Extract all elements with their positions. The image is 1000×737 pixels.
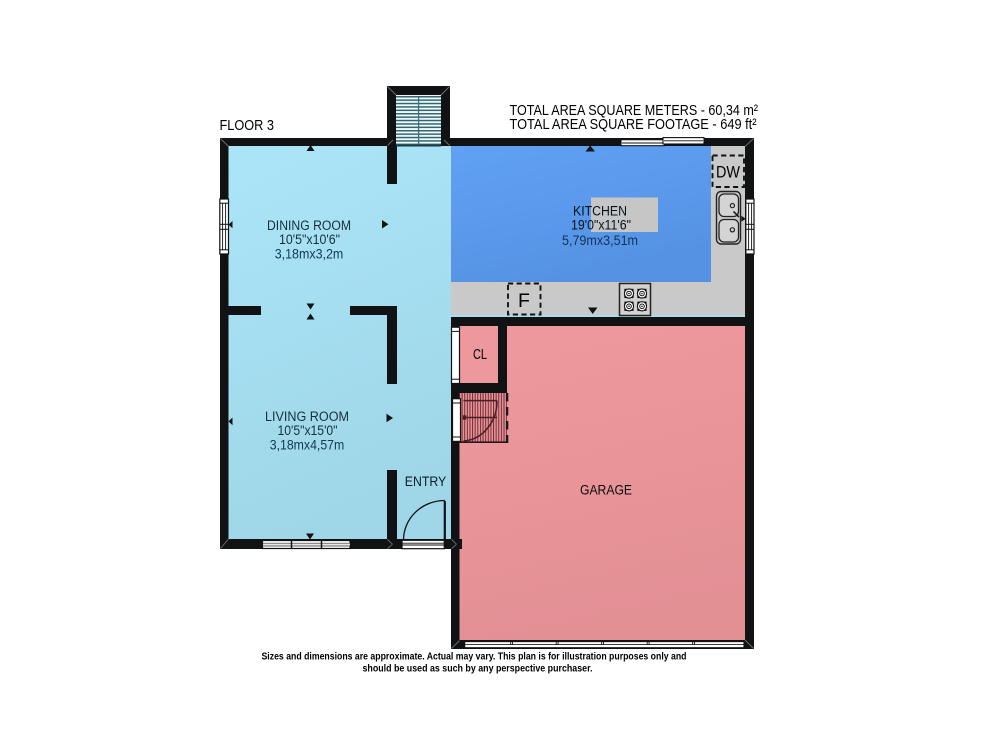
svg-text:GARAGE: GARAGE (580, 483, 632, 498)
svg-text:KITCHEN: KITCHEN (573, 204, 627, 219)
svg-text:F: F (518, 290, 530, 312)
svg-text:DINING ROOM: DINING ROOM (267, 218, 351, 233)
svg-text:3,18mx3,2m: 3,18mx3,2m (275, 246, 344, 262)
svg-text:FLOOR 3: FLOOR 3 (220, 117, 275, 134)
svg-text:19'0"x11'6": 19'0"x11'6" (571, 218, 631, 233)
svg-text:Sizes and dimensions are appro: Sizes and dimensions are approximate. Ac… (262, 651, 687, 662)
svg-text:should be used as such by any: should be used as such by any perspectiv… (363, 664, 593, 675)
svg-text:CL: CL (473, 347, 487, 363)
svg-text:TOTAL AREA SQUARE FOOTAGE - 6: TOTAL AREA SQUARE FOOTAGE - 649 ft² (510, 116, 757, 133)
svg-text:LIVING ROOM: LIVING ROOM (265, 409, 349, 424)
svg-text:DW: DW (716, 163, 740, 182)
svg-text:ENTRY: ENTRY (405, 474, 447, 489)
svg-text:5,79mx3,51m: 5,79mx3,51m (562, 232, 638, 248)
svg-text:3,18mx4,57m: 3,18mx4,57m (270, 437, 345, 453)
